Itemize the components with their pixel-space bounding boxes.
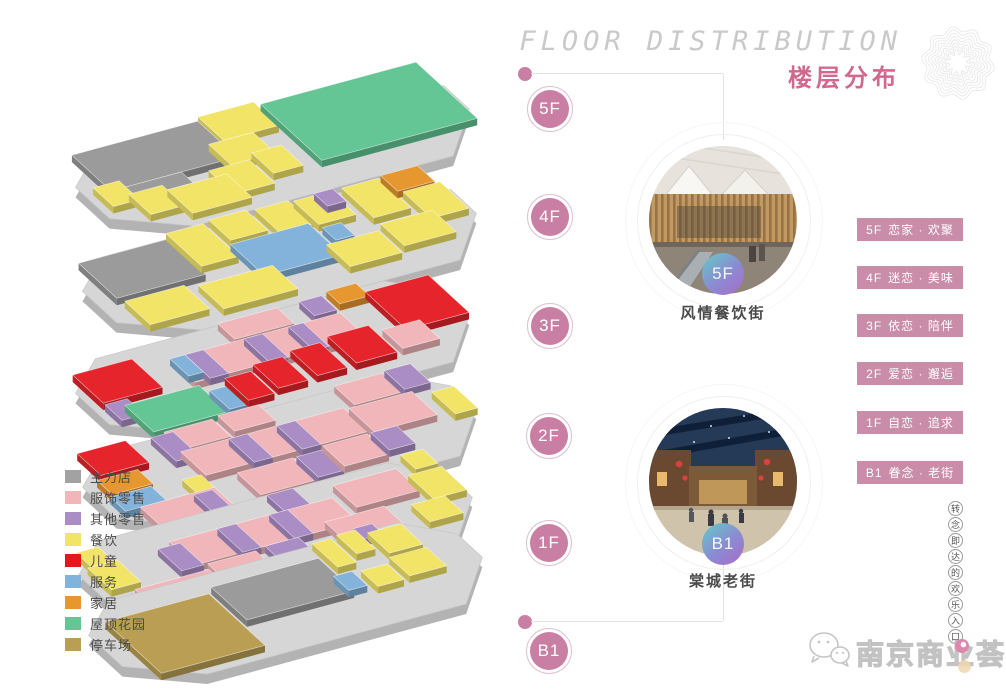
photo-floor-badge-5f: 5F <box>702 253 744 295</box>
legend-swatch <box>65 575 81 588</box>
legend-item: 儿童 <box>65 553 146 567</box>
theme-badge-2f: 2F爱恋 · 邂逅 <box>857 362 963 385</box>
theme-badge-5f: 5F恋家 · 欢聚 <box>857 218 963 241</box>
legend-item: 其他零售 <box>65 511 146 525</box>
floor-marker-2f: 2F <box>526 413 572 459</box>
slogan-char: 欢 <box>948 581 963 596</box>
guilloche-flower-icon <box>920 25 996 101</box>
floor-marker-4f: 4F <box>527 194 573 240</box>
logo-pink-dot <box>955 639 969 653</box>
floor-marker-1f: 1F <box>526 520 572 566</box>
legend-item: 服饰零售 <box>65 490 146 504</box>
theme-badge-b1: B1眷念 · 老街 <box>857 461 963 484</box>
legend-swatch <box>65 638 81 651</box>
vertical-slogan: 转 念 即 达 的 欢 乐 入 口 <box>948 501 963 644</box>
legend-item: 服务 <box>65 574 146 588</box>
legend-swatch <box>65 512 81 525</box>
slogan-char: 即 <box>948 533 963 548</box>
legend-item: 屋顶花园 <box>65 616 146 630</box>
legend-swatch <box>65 533 81 546</box>
theme-badge-1f: 1F自恋 · 追求 <box>857 411 963 434</box>
connector-dot-bottom <box>518 615 532 629</box>
floor-marker-5f: 5F <box>527 86 573 132</box>
slogan-char: 念 <box>948 517 963 532</box>
legend-swatch <box>65 491 81 504</box>
connector-dot-top <box>518 67 532 81</box>
floor-distribution-slide: FLOOR DISTRIBUTION 楼层分布 主力店 服饰零售 其他零售 餐饮… <box>0 0 1006 694</box>
exploded-floor-map <box>0 0 1006 694</box>
photo-caption-food-street: 风情餐饮街 <box>649 302 797 323</box>
legend-swatch <box>65 596 81 609</box>
floor-marker-b1: B1 <box>526 628 572 674</box>
slogan-char: 乐 <box>948 597 963 612</box>
slogan-char: 入 <box>948 613 963 628</box>
legend-swatch <box>65 470 81 483</box>
photo-floor-badge-b1: B1 <box>702 523 744 565</box>
connector-line <box>531 621 723 622</box>
theme-badge-3f: 3F依恋 · 陪伴 <box>857 314 963 337</box>
legend: 主力店 服饰零售 其他零售 餐饮 儿童 服务 家居 屋顶花园 停车场 <box>65 469 146 651</box>
legend-item: 停车场 <box>65 637 146 651</box>
legend-swatch <box>65 554 81 567</box>
slogan-char: 转 <box>948 501 963 516</box>
account-logo-text: 南京商业荟 <box>856 633 1006 673</box>
page-title-en: FLOOR DISTRIBUTION <box>519 26 902 57</box>
legend-item: 餐饮 <box>65 532 146 546</box>
logo-tan-dot <box>958 660 971 673</box>
slogan-char: 达 <box>948 549 963 564</box>
photo-caption-old-street: 棠城老街 <box>649 570 797 591</box>
theme-badge-4f: 4F迷恋 · 美味 <box>857 266 963 289</box>
slogan-char: 的 <box>948 565 963 580</box>
legend-item: 主力店 <box>65 469 146 483</box>
wechat-icon <box>806 629 852 671</box>
legend-swatch <box>65 617 81 630</box>
page-title-zh: 楼层分布 <box>788 58 900 93</box>
connector-line <box>531 73 723 74</box>
legend-item: 家居 <box>65 595 146 609</box>
floor-marker-3f: 3F <box>527 303 573 349</box>
